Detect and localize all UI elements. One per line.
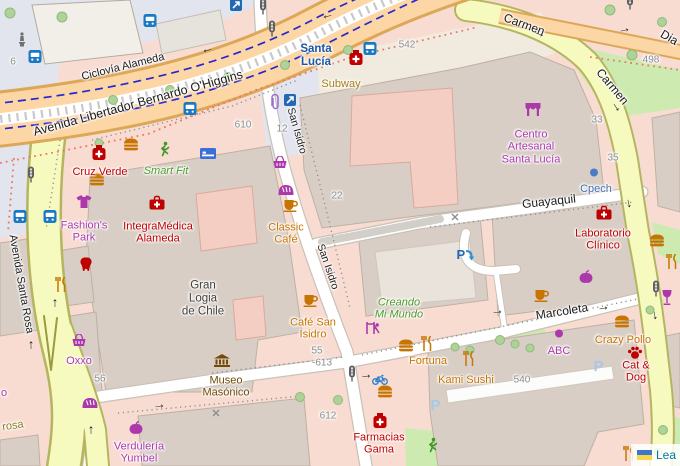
map-viewport[interactable]: PPP Ciclovía AlamedaAvenida Libertador B… xyxy=(0,0,680,466)
map-tiles xyxy=(0,0,680,466)
attribution-link[interactable]: Lea xyxy=(656,448,676,462)
attribution-bar: Lea xyxy=(631,444,680,466)
ukraine-flag-icon xyxy=(637,450,652,460)
